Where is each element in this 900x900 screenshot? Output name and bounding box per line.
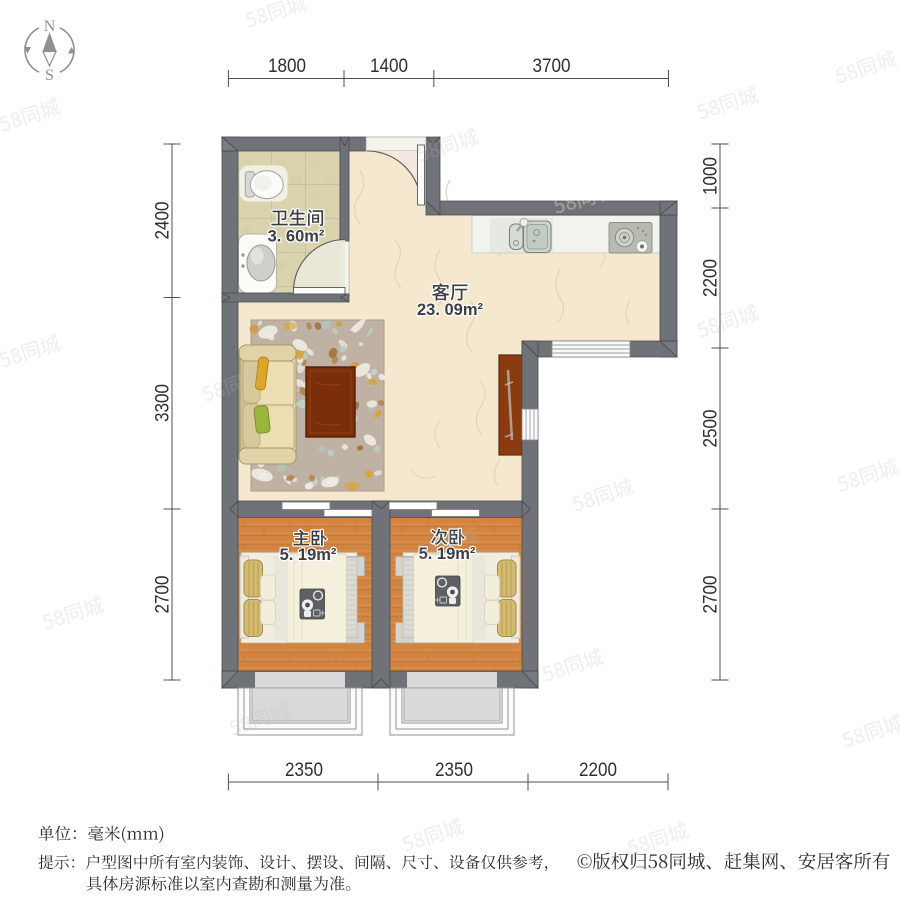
svg-text:1000: 1000: [700, 157, 722, 195]
svg-text:2700: 2700: [152, 575, 174, 613]
svg-text:N: N: [44, 18, 56, 35]
svg-text:2500: 2500: [700, 409, 722, 447]
svg-text:3300: 3300: [152, 384, 174, 422]
svg-text:23. 09m²: 23. 09m²: [417, 301, 484, 319]
svg-text:2350: 2350: [285, 759, 323, 781]
svg-text:2350: 2350: [435, 759, 473, 781]
svg-text:2200: 2200: [579, 759, 617, 781]
svg-text:2200: 2200: [700, 259, 722, 297]
svg-text:1800: 1800: [268, 55, 306, 77]
svg-text:3700: 3700: [533, 55, 571, 77]
svg-text:1400: 1400: [370, 55, 408, 77]
svg-text:S: S: [45, 67, 54, 84]
svg-text:5. 19m²: 5. 19m²: [280, 546, 337, 564]
svg-text:3. 60m²: 3. 60m²: [268, 228, 325, 246]
svg-text:2400: 2400: [152, 201, 174, 239]
svg-text:2700: 2700: [700, 575, 722, 613]
